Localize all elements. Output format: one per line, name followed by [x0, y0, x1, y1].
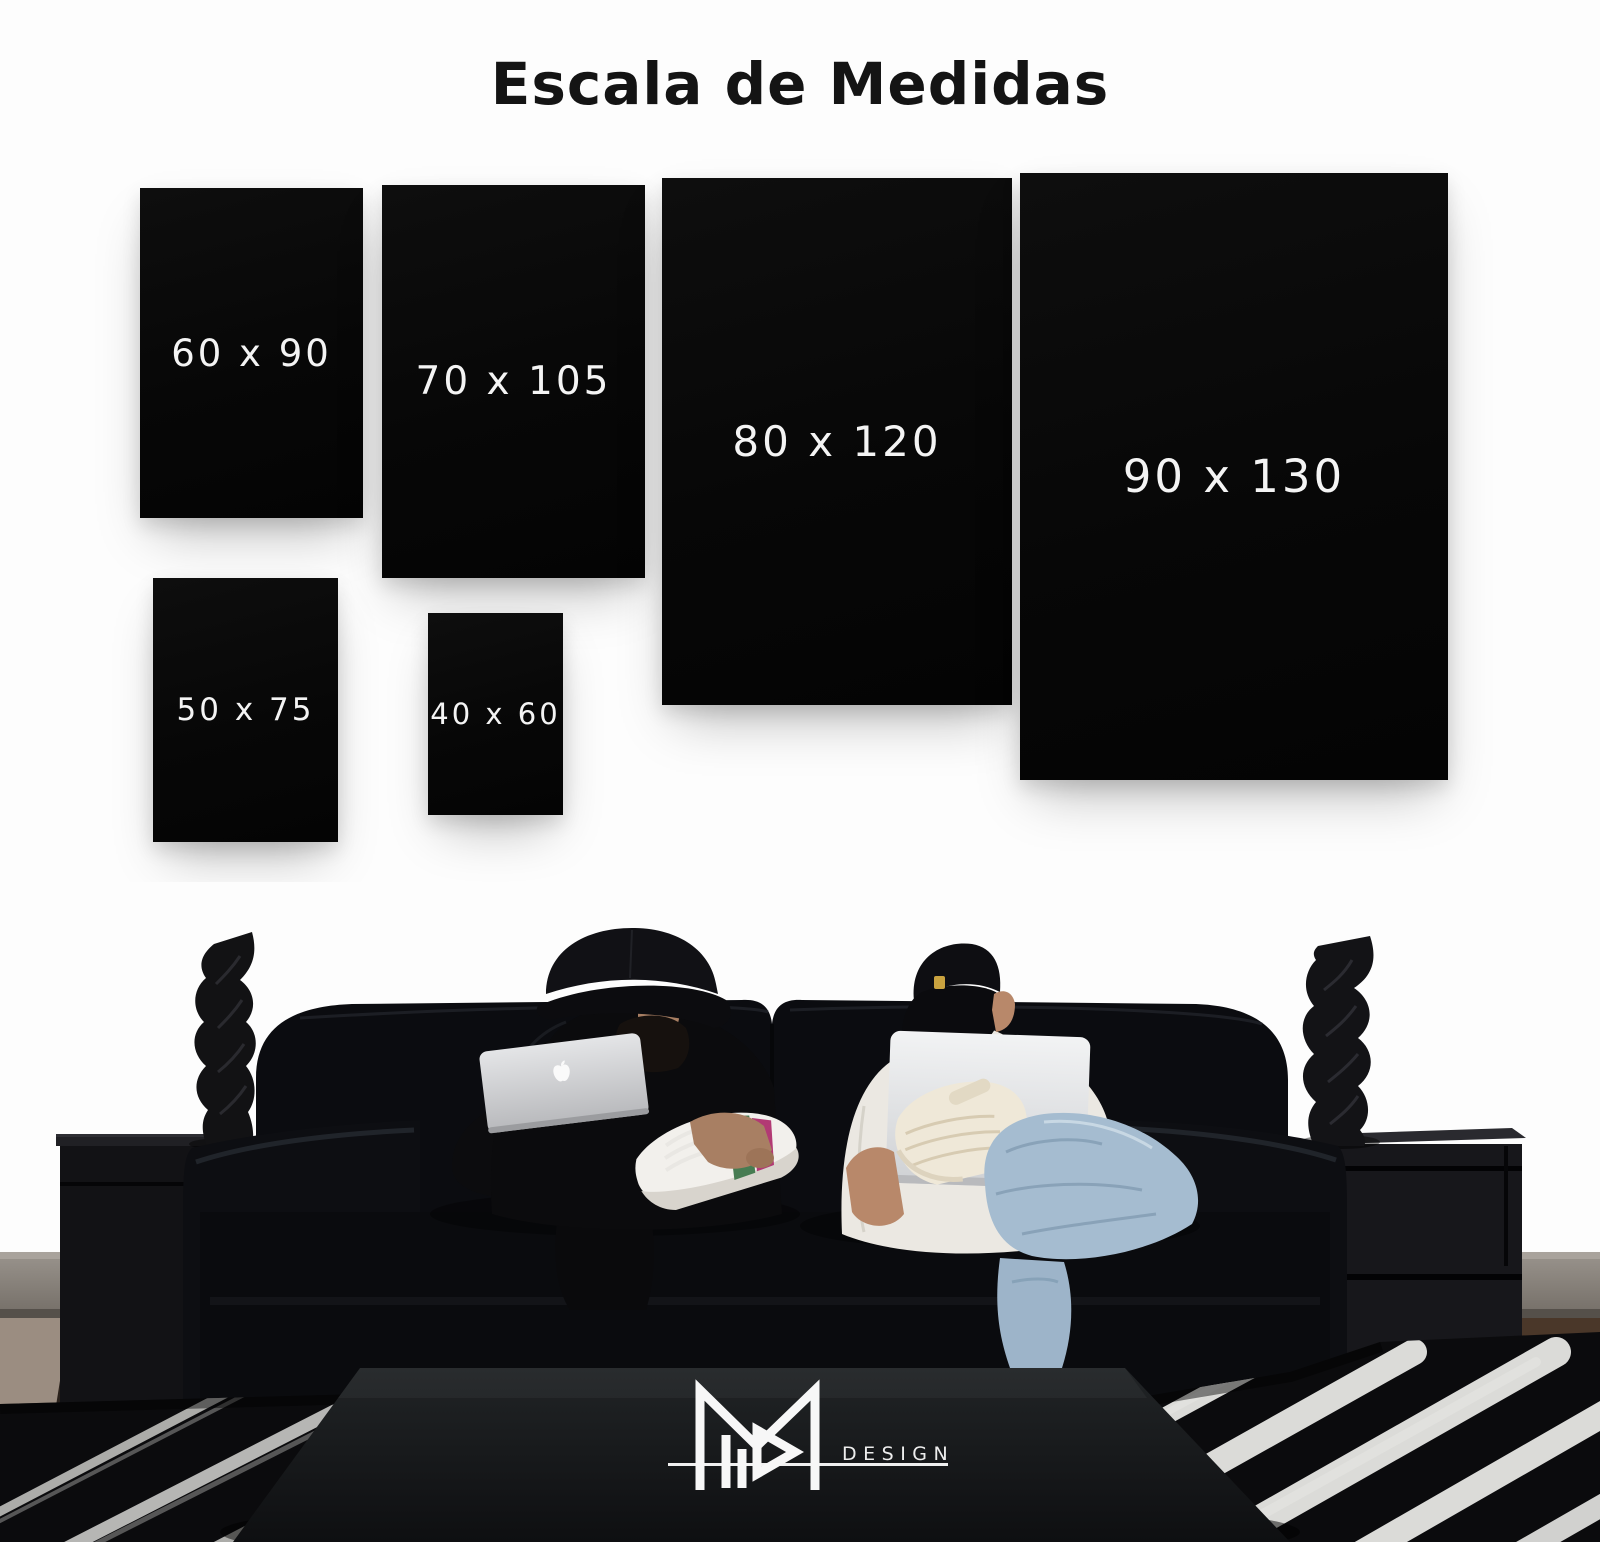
- page-title: Escala de Medidas: [0, 50, 1600, 118]
- brand-wordmark: DESIGN: [842, 1443, 954, 1465]
- size-label: 80 x 120: [732, 417, 941, 466]
- size-box-50x75: 50 x 75: [153, 578, 338, 842]
- cap-shield-badge-icon: [934, 976, 945, 989]
- size-label: 50 x 75: [177, 692, 315, 728]
- size-box-80x120: 80 x 120: [662, 178, 1012, 705]
- size-scale-mockup: Escala de Medidas 60 x 90 70 x 105 80 x …: [0, 0, 1600, 1542]
- man-right-lower-leg: [997, 1258, 1071, 1368]
- size-box-90x130: 90 x 130: [1020, 173, 1448, 780]
- size-label: 40 x 60: [430, 697, 560, 731]
- size-box-40x60: 40 x 60: [428, 613, 563, 815]
- man-left-hand: [746, 1148, 774, 1168]
- scene-photo: DESIGN: [0, 882, 1600, 1542]
- size-box-60x90: 60 x 90: [140, 188, 363, 518]
- size-label: 60 x 90: [171, 332, 332, 375]
- size-label: 70 x 105: [416, 359, 612, 404]
- size-box-70x105: 70 x 105: [382, 185, 645, 578]
- size-label: 90 x 130: [1123, 450, 1345, 503]
